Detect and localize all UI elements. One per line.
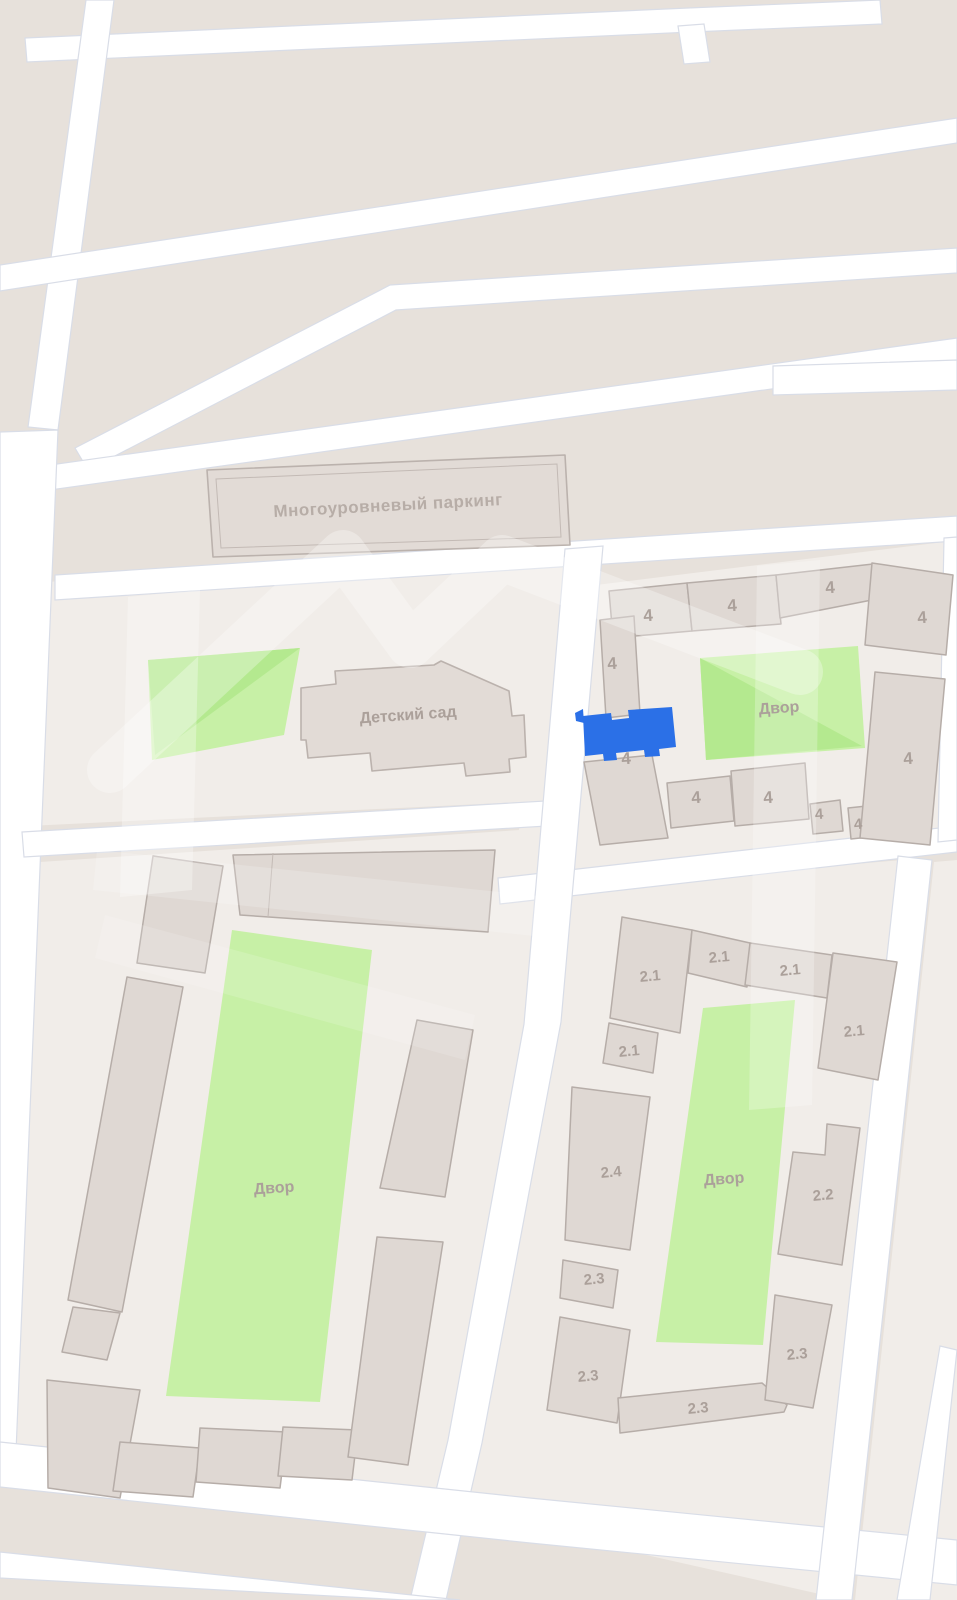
building-2-1-label: 2.1: [639, 967, 661, 986]
building-4-label: 4: [621, 749, 632, 769]
courtyard-label: Двор: [253, 1179, 295, 1199]
building-2-3-label: 2.3: [577, 1367, 599, 1386]
building-4-label: 4: [763, 788, 774, 808]
building-2-3-label: 2.3: [583, 1270, 605, 1289]
map-canvas: Многоуровневый паркинг Детский сад Двор …: [0, 0, 957, 1600]
courtyard-label: Двор: [758, 699, 800, 719]
building-2-4-label: 2.4: [600, 1163, 623, 1182]
building-2-1-label: 2.1: [708, 948, 730, 967]
building-2-3-label: 2.3: [786, 1345, 808, 1364]
building-2-2-label: 2.2: [812, 1186, 834, 1205]
building-4-label: 4: [825, 578, 836, 598]
building: [278, 1427, 358, 1480]
building-4-section[interactable]: [865, 563, 953, 655]
site-plan-map: Многоуровневый паркинг Детский сад Двор …: [0, 0, 957, 1600]
building-2-1-label: 2.1: [843, 1022, 865, 1041]
building-2-3-label: 2.3: [687, 1399, 709, 1418]
watermark-band: [749, 560, 820, 1110]
courtyard-label: Двор: [703, 1170, 745, 1190]
building-4-label: 4: [903, 749, 914, 769]
building-4-label: 4: [917, 608, 928, 628]
building-2-1-label: 2.1: [618, 1042, 640, 1061]
building-4-label: 4: [643, 606, 654, 626]
building-2-1-label: 2.1: [779, 961, 801, 980]
road: [773, 360, 957, 395]
building-4-label: 4: [727, 596, 738, 616]
building: [113, 1442, 200, 1497]
building: [196, 1428, 287, 1488]
building-4-label: 4: [607, 654, 618, 674]
road: [678, 24, 710, 64]
building-4-label: 4: [691, 788, 702, 808]
